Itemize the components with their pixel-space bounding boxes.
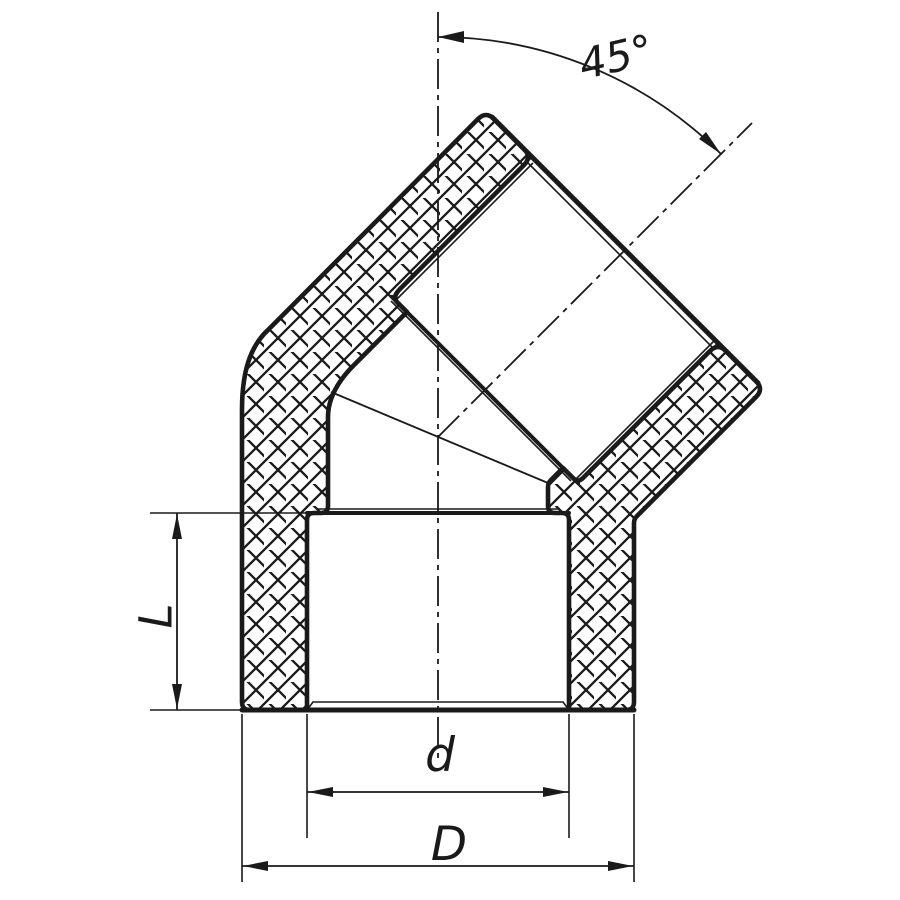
length-arrowhead-top xyxy=(172,514,182,539)
fitting-section-body xyxy=(242,115,760,710)
inner-diameter-label: d xyxy=(425,728,456,783)
elbow-45-section-drawing: 45° L d D xyxy=(0,0,900,900)
section-left-upper-wall xyxy=(242,115,528,710)
length-arrowhead-bottom xyxy=(172,684,182,709)
inner-diameter-arrowhead-left xyxy=(308,787,333,797)
bore-miter-line xyxy=(331,392,548,483)
outer-diameter-arrowhead-right xyxy=(608,861,633,871)
outer-diameter-arrowhead-left xyxy=(243,861,268,871)
outer-diameter-label: D xyxy=(431,817,467,872)
technical-drawing-page: 45° L d D xyxy=(0,0,900,900)
angle-label: 45° xyxy=(574,25,658,89)
angle-arrowhead-left xyxy=(438,31,464,43)
inner-diameter-arrowhead-right xyxy=(543,787,568,797)
length-label: L xyxy=(130,603,183,628)
